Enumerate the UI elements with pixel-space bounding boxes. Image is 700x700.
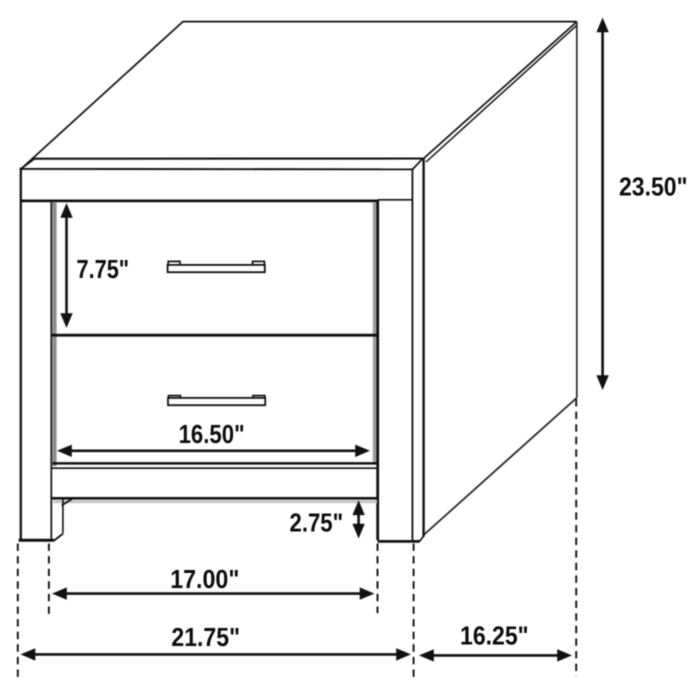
svg-text:2.75": 2.75" bbox=[290, 507, 344, 537]
svg-text:16.50": 16.50" bbox=[179, 419, 245, 449]
svg-text:17.00": 17.00" bbox=[170, 564, 239, 594]
svg-text:23.50": 23.50" bbox=[619, 172, 688, 202]
svg-text:21.75": 21.75" bbox=[171, 622, 240, 652]
svg-text:7.75": 7.75" bbox=[77, 254, 130, 284]
svg-text:16.25": 16.25" bbox=[460, 621, 529, 651]
